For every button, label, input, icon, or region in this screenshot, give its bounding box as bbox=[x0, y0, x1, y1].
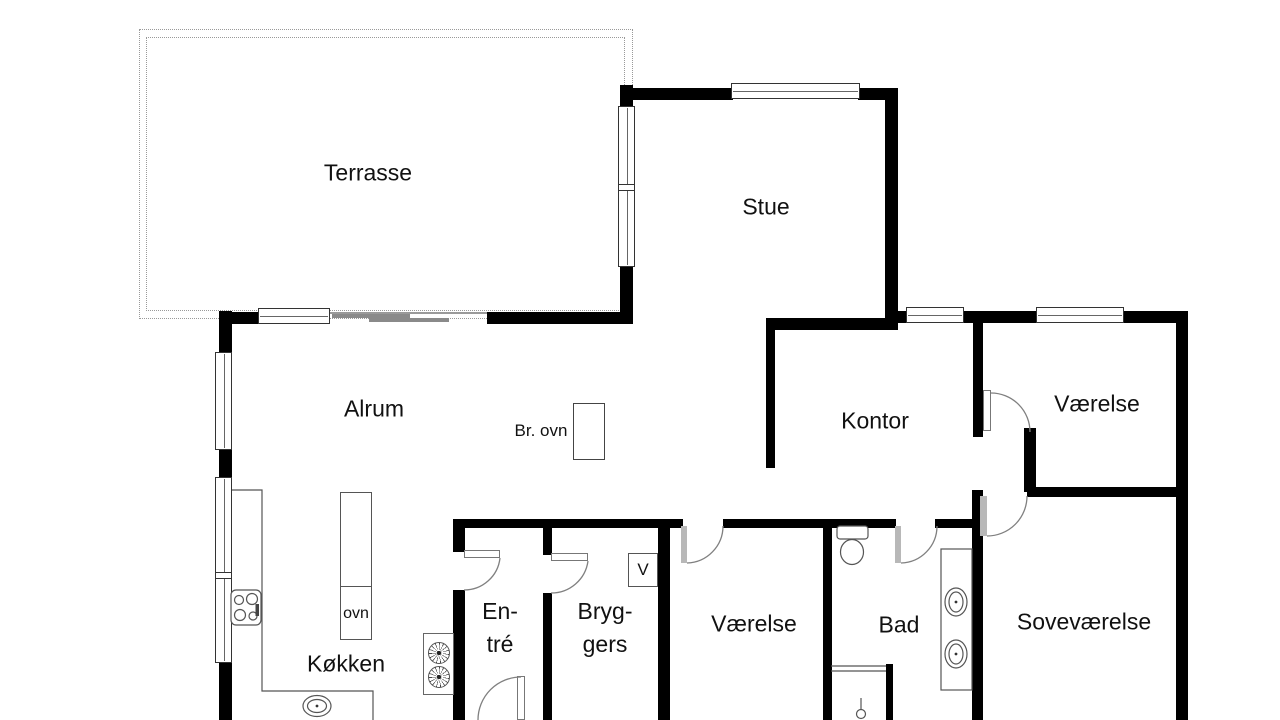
door-leaf-bad bbox=[895, 526, 901, 563]
window bbox=[731, 83, 860, 99]
cooktop-controls bbox=[256, 604, 260, 616]
wall bbox=[1024, 428, 1036, 492]
shower-screen bbox=[831, 666, 886, 671]
fan-icon bbox=[428, 666, 450, 688]
wall bbox=[219, 312, 261, 324]
room-label-entre-line2: tré bbox=[482, 628, 518, 661]
sink-drain bbox=[955, 601, 958, 604]
kitchen-sink-icon bbox=[303, 696, 331, 717]
wall bbox=[219, 663, 232, 720]
door-arc-front-entrance bbox=[478, 677, 521, 720]
vanity-counter bbox=[941, 549, 972, 690]
door-arc-sovevaerelse bbox=[987, 496, 1027, 536]
burner-icon bbox=[235, 596, 244, 605]
window bbox=[906, 307, 964, 323]
wall bbox=[885, 88, 898, 330]
door-leaf-entre bbox=[464, 550, 500, 558]
room-label-alrum: Alrum bbox=[344, 393, 404, 426]
wall bbox=[766, 318, 898, 330]
room-label-vaerelse-s: Værelse bbox=[711, 608, 797, 641]
wall bbox=[219, 450, 232, 477]
fan-icon bbox=[428, 642, 450, 664]
door-leaf-sovevaerelse bbox=[980, 496, 987, 536]
door-leaf-vaerelse-ne bbox=[983, 390, 991, 431]
wall bbox=[453, 519, 683, 528]
label-oven: ovn bbox=[343, 605, 369, 623]
window-pane-line bbox=[260, 316, 328, 317]
wall bbox=[723, 519, 896, 528]
shower-head-icon bbox=[857, 710, 866, 719]
room-label-bryggers: Bryg- gers bbox=[578, 595, 633, 661]
window-sill-mark bbox=[619, 184, 634, 191]
wall bbox=[543, 519, 552, 555]
room-label-kontor: Kontor bbox=[841, 405, 909, 438]
door-leaf-vaerelse-s bbox=[681, 526, 687, 563]
window-pane-line bbox=[224, 354, 225, 448]
wall bbox=[766, 318, 775, 468]
sliding-door-panel bbox=[369, 318, 449, 322]
burner-icon bbox=[235, 610, 246, 621]
room-label-bryggers-line1: Bryg- bbox=[578, 595, 633, 628]
door-arc-vaerelse-ne bbox=[991, 393, 1030, 432]
window-pane-line bbox=[908, 315, 962, 316]
room-label-stue: Stue bbox=[742, 191, 789, 224]
window bbox=[258, 308, 330, 324]
toilet-bowl bbox=[841, 540, 864, 565]
vanity-sink-icon bbox=[945, 640, 967, 668]
wall bbox=[487, 312, 633, 324]
window-sill-mark bbox=[216, 572, 231, 579]
wall bbox=[1176, 311, 1188, 720]
vanity-sink-icon bbox=[945, 588, 967, 616]
window bbox=[215, 477, 232, 663]
wall bbox=[543, 593, 552, 720]
room-label-terrasse: Terrasse bbox=[324, 157, 412, 190]
room-label-entre: En- tré bbox=[482, 595, 518, 661]
room-label-bad: Bad bbox=[879, 609, 920, 642]
wall bbox=[658, 519, 670, 720]
wood-stove-box bbox=[573, 403, 605, 460]
sink-drain bbox=[316, 705, 319, 708]
door-arc-bad bbox=[901, 526, 937, 563]
window-pane-line bbox=[1038, 315, 1122, 316]
door-leaf-front-entrance bbox=[517, 676, 525, 720]
wall bbox=[973, 311, 983, 437]
room-label-vaerelse-ne: Værelse bbox=[1054, 388, 1140, 421]
room-label-entre-line1: En- bbox=[482, 595, 518, 628]
room-label-koekken: Køkken bbox=[307, 648, 385, 681]
vanity-sink-inner bbox=[949, 592, 963, 612]
floor-plan: Terrasse Stue Alrum Kontor Værelse Køkke… bbox=[0, 0, 1280, 720]
window bbox=[1036, 307, 1124, 323]
door-arc-entre bbox=[464, 558, 500, 590]
cooktop-icon bbox=[231, 590, 261, 625]
kitchen-sink-inner bbox=[308, 700, 327, 713]
room-label-bryggers-line2: gers bbox=[578, 628, 633, 661]
label-vent: V bbox=[637, 560, 648, 580]
wall bbox=[453, 590, 465, 720]
wall bbox=[620, 266, 633, 324]
oven-divider bbox=[340, 586, 372, 587]
window-pane-line bbox=[733, 91, 858, 92]
wall bbox=[935, 519, 973, 528]
wall bbox=[453, 519, 465, 552]
wall bbox=[620, 88, 733, 100]
window-pane-line bbox=[224, 479, 225, 661]
wall bbox=[1027, 487, 1180, 497]
window bbox=[215, 352, 232, 450]
wall bbox=[823, 519, 832, 720]
burner-icon bbox=[249, 612, 257, 620]
window bbox=[618, 106, 635, 267]
wall bbox=[886, 664, 893, 720]
burner-icon bbox=[247, 594, 258, 605]
door-leaf-bryggers bbox=[551, 553, 588, 561]
sink-drain bbox=[955, 653, 958, 656]
label-wood-stove: Br. ovn bbox=[515, 421, 568, 441]
vanity-sink-inner bbox=[949, 644, 963, 664]
door-arc-vaerelse-s bbox=[687, 526, 723, 563]
door-arc-bryggers bbox=[551, 561, 588, 593]
room-label-sovevaerelse: Soveværelse bbox=[1017, 606, 1151, 639]
